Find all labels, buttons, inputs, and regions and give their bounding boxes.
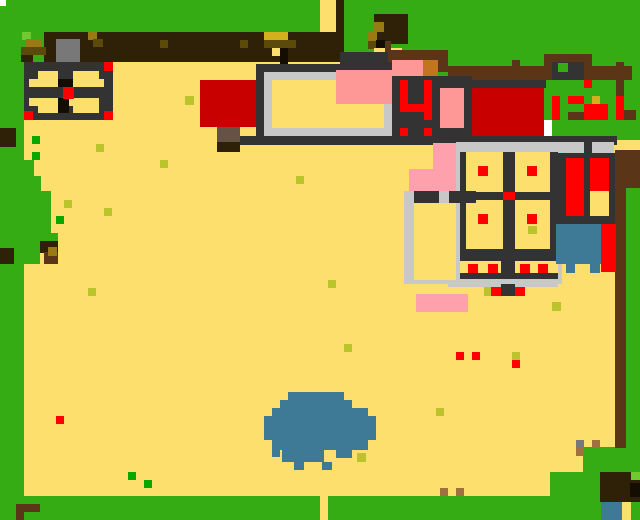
game-viewport	[0, 0, 640, 520]
map-rect-tan	[576, 448, 584, 456]
north-wall[interactable]	[44, 32, 336, 62]
southwest-bench[interactable]	[16, 504, 40, 520]
red-shop-east[interactable]	[472, 80, 546, 136]
map-rect-red	[472, 352, 480, 360]
map-rect-yg	[344, 344, 352, 352]
flower-patch-ne[interactable]	[552, 80, 624, 120]
map-rect-pink	[409, 169, 456, 191]
map-rect-greenDot	[128, 472, 136, 480]
market-annex[interactable]	[404, 191, 464, 284]
map-rect-pink	[433, 143, 456, 169]
map-rect-yg	[104, 208, 112, 216]
map-rect-yg	[552, 302, 561, 311]
map-rect-olive	[21, 47, 46, 55]
map-rect-yg	[160, 160, 168, 168]
map-rect-brown	[624, 110, 636, 120]
west-tree[interactable]	[24, 160, 58, 264]
map-rect-gold	[26, 39, 41, 47]
map-rect-tan	[592, 440, 600, 448]
map-rect-red	[56, 416, 64, 424]
map-rect-pink	[416, 294, 468, 312]
map-rect-brown	[615, 150, 640, 188]
fence-line[interactable]	[388, 50, 632, 80]
map-rect-tan	[440, 488, 448, 496]
map-rect-yg	[64, 200, 72, 208]
map-rect-red	[515, 287, 525, 296]
map-rect-tan	[456, 488, 464, 496]
small-pond[interactable]	[556, 224, 616, 273]
map-rect-wallDark	[0, 128, 16, 147]
map-rect-yg	[436, 408, 444, 416]
map-rect-yg	[296, 176, 304, 184]
map-rect-wallDark	[0, 248, 14, 264]
map-rect-white	[0, 0, 6, 6]
map-rect-yg	[88, 288, 96, 296]
map-rect-yg	[328, 280, 336, 288]
world-map[interactable]	[0, 0, 640, 520]
banner-stand[interactable]	[552, 153, 617, 224]
map-rect-yg	[96, 144, 104, 152]
town-hall[interactable]	[256, 64, 392, 144]
map-rect-red	[512, 360, 520, 368]
gate-statue[interactable]	[56, 39, 80, 72]
southeast-house[interactable]	[600, 472, 640, 520]
map-rect-greenDot	[32, 136, 40, 144]
map-rect-red	[491, 287, 501, 296]
large-pond[interactable]	[264, 392, 376, 472]
map-rect-gray	[576, 440, 584, 448]
map-rect-yg	[185, 96, 194, 105]
south-exit-path[interactable]	[320, 496, 328, 520]
map-rect-greenDot	[144, 480, 152, 488]
map-rect-greenDot	[32, 152, 40, 160]
north-tree[interactable]	[368, 14, 408, 62]
map-rect-red	[456, 352, 464, 360]
map-rect-yg	[512, 352, 520, 360]
map-rect-brown	[615, 188, 626, 448]
map-rect-wallDark	[21, 55, 33, 62]
chimney-path-north[interactable]	[320, 0, 344, 62]
